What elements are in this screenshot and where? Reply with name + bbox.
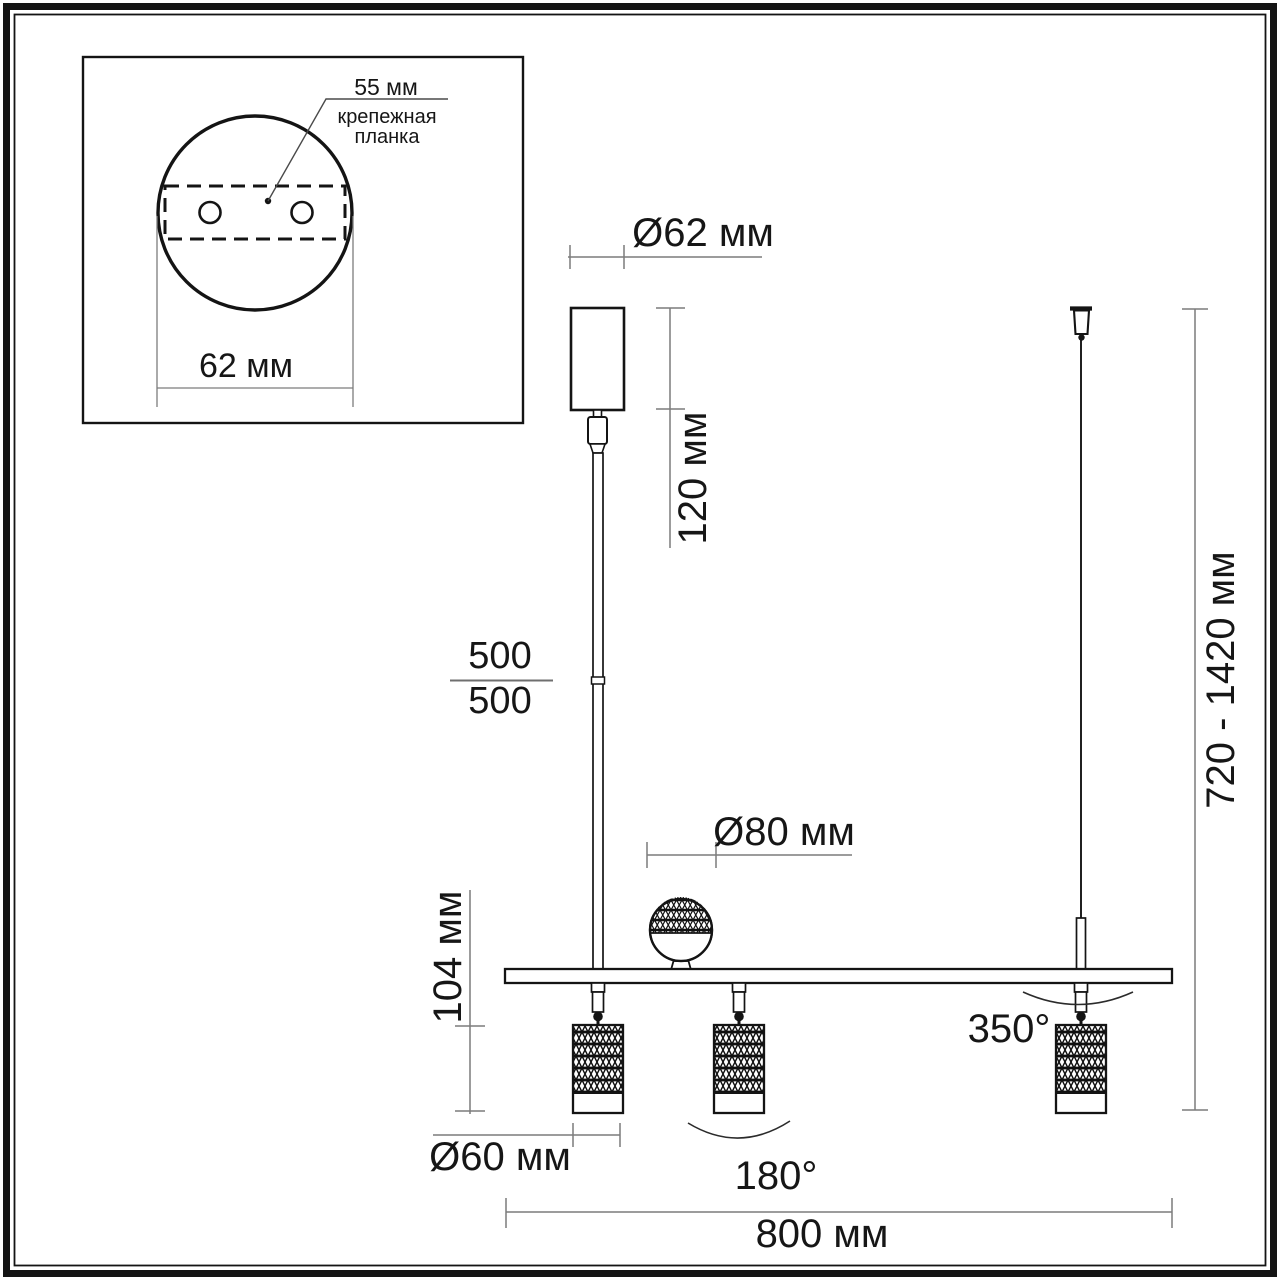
spot-shade-mesh — [574, 1026, 622, 1092]
rod-taper — [590, 444, 605, 453]
spot-yoke — [592, 983, 605, 992]
dimension-canopy-diameter-label: Ø62 мм — [632, 211, 774, 255]
dimensions: Ø62 мм 120 мм 500 500 Ø80 мм 104 мм Ø60 … — [426, 211, 1243, 1256]
tilt-angle-arc — [688, 1121, 790, 1138]
tilt-angle-label: 180° — [735, 1154, 818, 1198]
spot-head-center — [714, 983, 764, 1113]
dimension-head-diameter-label: Ø60 мм — [429, 1135, 571, 1179]
spot-yoke — [1075, 983, 1088, 992]
mounting-plate-inset: 55 мм крепежная планка 62 мм — [83, 57, 523, 423]
plate-diameter-label: 62 мм — [199, 347, 293, 385]
spot-stem — [1076, 992, 1087, 1012]
hole-spacing-label: 55 мм — [354, 74, 418, 100]
lamp-dimension-drawing: 55 мм крепежная планка 62 мм — [0, 0, 1280, 1280]
decor-sphere — [650, 897, 712, 970]
dimension-overall-height-label: 720 - 1420 мм — [1199, 551, 1243, 808]
fixture-drawing — [505, 308, 1172, 1113]
spot-yoke — [733, 983, 746, 992]
spot-swivel-ball — [1076, 1012, 1086, 1022]
wire-ceiling-mount — [1074, 311, 1089, 335]
suspension-wire-assembly — [1070, 309, 1092, 970]
dimension-head-height-label: 104 мм — [426, 891, 470, 1024]
spot-shade-mesh — [715, 1026, 763, 1092]
suspension-rod — [593, 453, 603, 969]
dimension-sphere-diameter-label: Ø80 мм — [713, 810, 855, 854]
ceiling-canopy — [571, 308, 624, 410]
rod-joint — [592, 677, 605, 684]
track-bar — [505, 969, 1172, 983]
canopy-assembly — [571, 308, 624, 969]
rod-coupler — [588, 417, 607, 444]
spot-stem — [593, 992, 604, 1012]
canopy-neck — [594, 410, 602, 417]
swivel-angle-label: 350° — [968, 1007, 1051, 1051]
dimension-rod-upper-label: 500 — [468, 635, 531, 677]
spot-swivel-ball — [734, 1012, 744, 1022]
dimension-canopy-height-label: 120 мм — [671, 412, 715, 545]
spot-swivel-ball — [593, 1012, 603, 1022]
wire-mount-ball — [1078, 334, 1084, 340]
spot-head-left — [573, 983, 623, 1113]
spot-shade-mesh — [1057, 1026, 1105, 1092]
bracket-label-line2: планка — [355, 126, 421, 148]
bracket-label-line1: крепежная — [337, 106, 436, 128]
dimension-rod-lower-label: 500 — [468, 680, 531, 722]
dimension-bar-length-label: 800 мм — [756, 1212, 889, 1256]
spot-stem — [734, 992, 745, 1012]
sphere-mesh-cap — [650, 897, 712, 933]
wire-sleeve — [1077, 918, 1086, 969]
technical-drawing-page: 55 мм крепежная планка 62 мм — [0, 0, 1280, 1280]
